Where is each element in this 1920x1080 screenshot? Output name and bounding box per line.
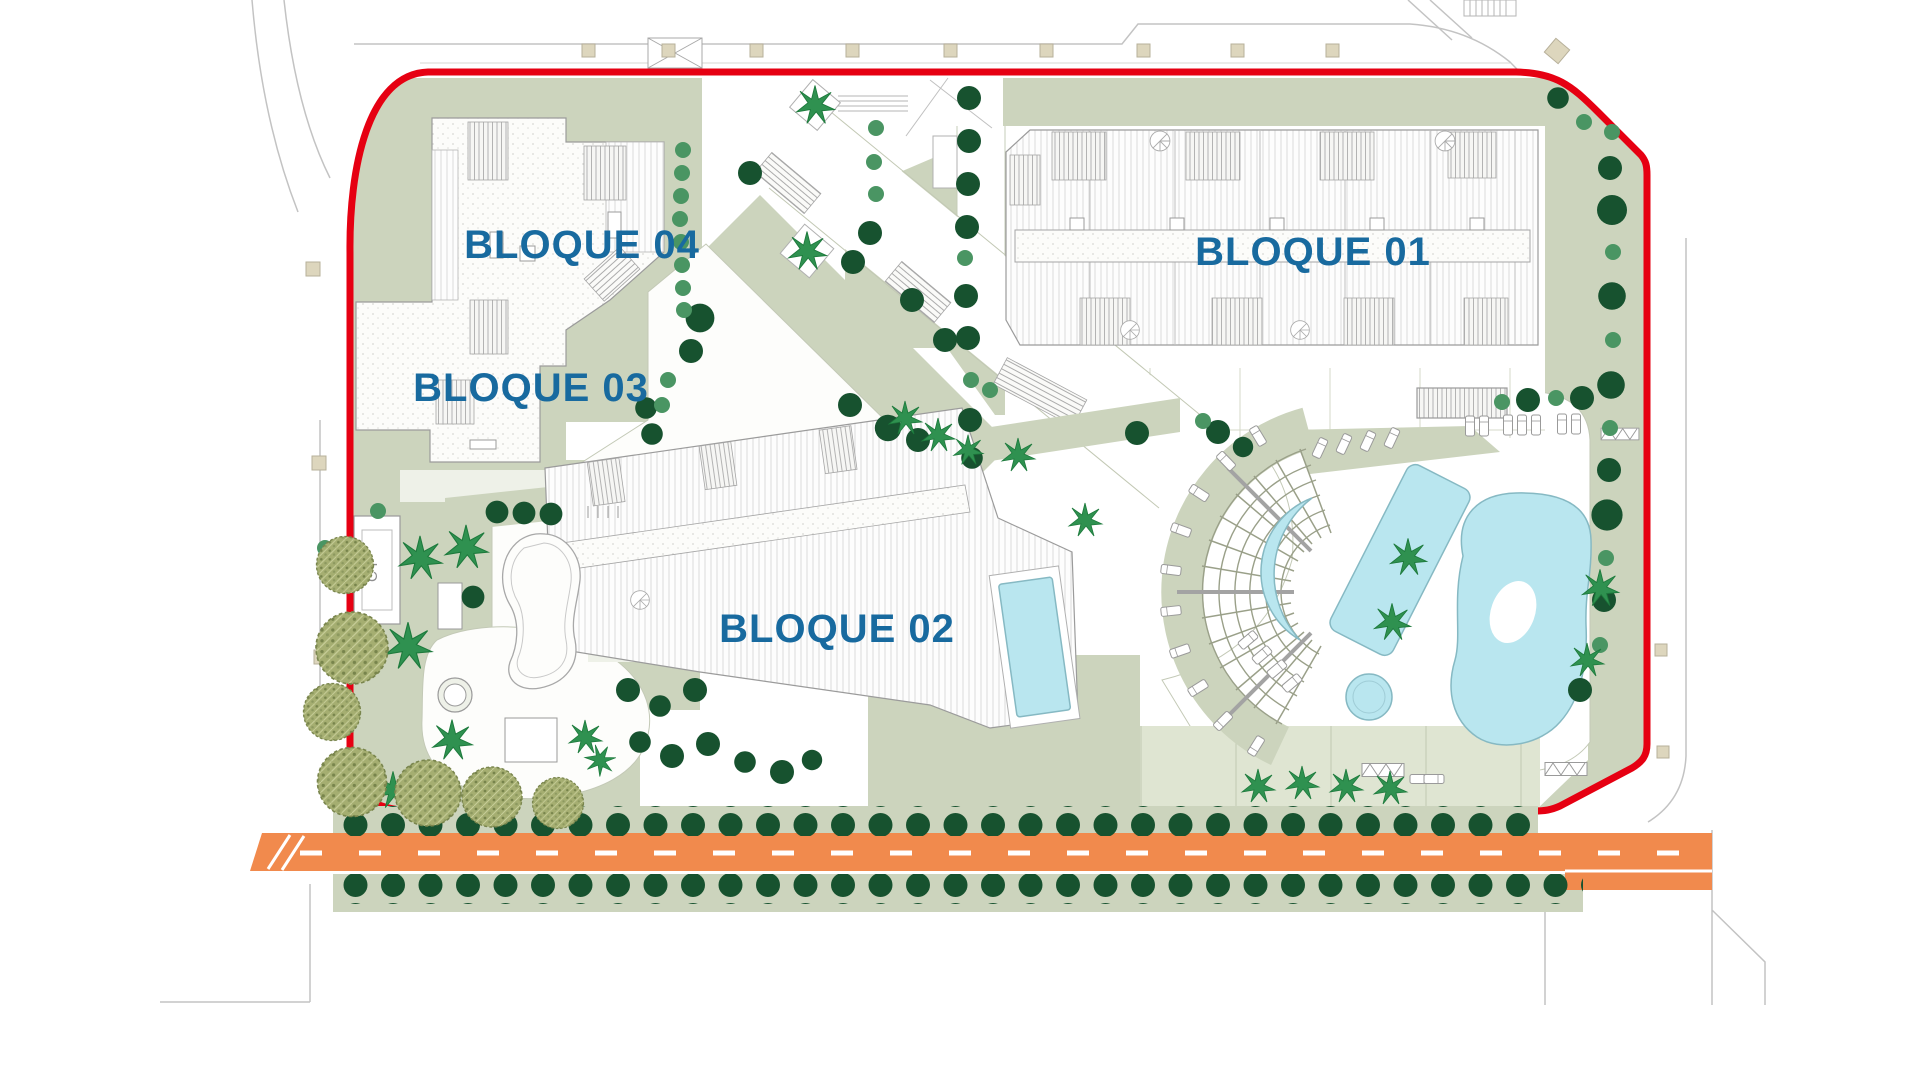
- garden-shed: [438, 583, 462, 629]
- label-bloque-02: BLOQUE 02: [719, 607, 955, 651]
- label-bloque-03: BLOQUE 03: [413, 366, 649, 410]
- label-bloque-04: BLOQUE 04: [464, 223, 700, 267]
- site-plan: CT: [0, 0, 1920, 1080]
- garden-shed-2: [505, 718, 557, 762]
- pergola: [1417, 388, 1507, 418]
- site-plan-canvas: CT: [0, 0, 1920, 1080]
- tree-row-bottom: [340, 874, 1583, 904]
- boulevard: [250, 806, 1712, 912]
- pond: [503, 534, 581, 689]
- street-structures: [648, 0, 1516, 68]
- fountain: [438, 678, 472, 712]
- label-bloque-01: BLOQUE 01: [1195, 230, 1431, 274]
- tree-row-top: [340, 806, 1532, 836]
